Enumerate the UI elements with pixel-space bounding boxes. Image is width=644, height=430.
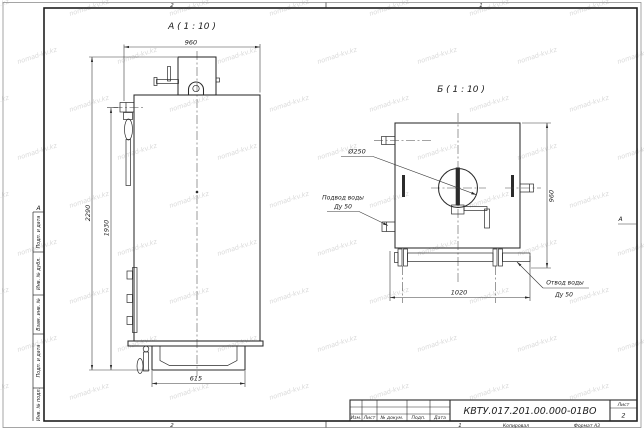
zone-letter-right: А: [617, 216, 622, 223]
col-izm: Изм.: [351, 415, 362, 421]
view-a-label: А ( 1 : 10 ): [167, 22, 216, 32]
zone-bottom-left: 2: [170, 423, 174, 429]
strip-label-1: Подп. и дата: [36, 216, 42, 249]
strip-label-5: Инв. № подл.: [36, 388, 42, 421]
dim-text-960-width: 960: [185, 39, 197, 47]
zone-letter-left: А: [35, 205, 40, 212]
zone-top-left: 2: [170, 3, 174, 9]
footer-copied: Копировал: [503, 423, 529, 429]
strip-label-3: Взам. инв. №: [36, 298, 42, 331]
damper-shaft: [456, 168, 460, 206]
strip-label-4: Подп. и дата: [36, 345, 42, 378]
strip-label-2: Инв. № дубл.: [36, 257, 42, 290]
label-water-inlet-line1: Подвод воды: [322, 195, 364, 202]
zone-top-right: 1: [479, 3, 483, 9]
view-b-label: Б ( 1 : 10 ): [437, 85, 485, 95]
footer-format: Формат А3: [574, 423, 600, 429]
sheet-number: 2: [621, 412, 625, 420]
label-water-outlet-line2: Ду 50: [554, 292, 573, 299]
dim-text-960-depth: 960: [548, 190, 556, 202]
sheet-label: Лист: [617, 402, 630, 408]
dim-text-615: 615: [190, 375, 202, 383]
dim-text-1020: 1020: [451, 289, 468, 297]
label-chimney-diameter: Ø250: [347, 148, 366, 156]
label-water-outlet-line1: Отвод воды: [546, 280, 584, 287]
col-list: Лист: [363, 415, 376, 421]
col-docnum: № докум.: [380, 415, 404, 421]
dim-text-2290: 2290: [84, 205, 92, 222]
label-water-inlet-line2: Ду 50: [333, 204, 352, 211]
dim-text-1930: 1930: [103, 220, 111, 237]
col-podp: Подп.: [412, 415, 426, 421]
doc-number: КВТУ.017.201.00.000-01ВО: [464, 406, 597, 417]
col-data: Дата: [433, 415, 446, 421]
zone-bottom-right: 1: [458, 423, 462, 429]
drawing-sheet: nomad-kv.kznomad-kv.kznomad-kv.kznomad-k…: [0, 0, 644, 430]
